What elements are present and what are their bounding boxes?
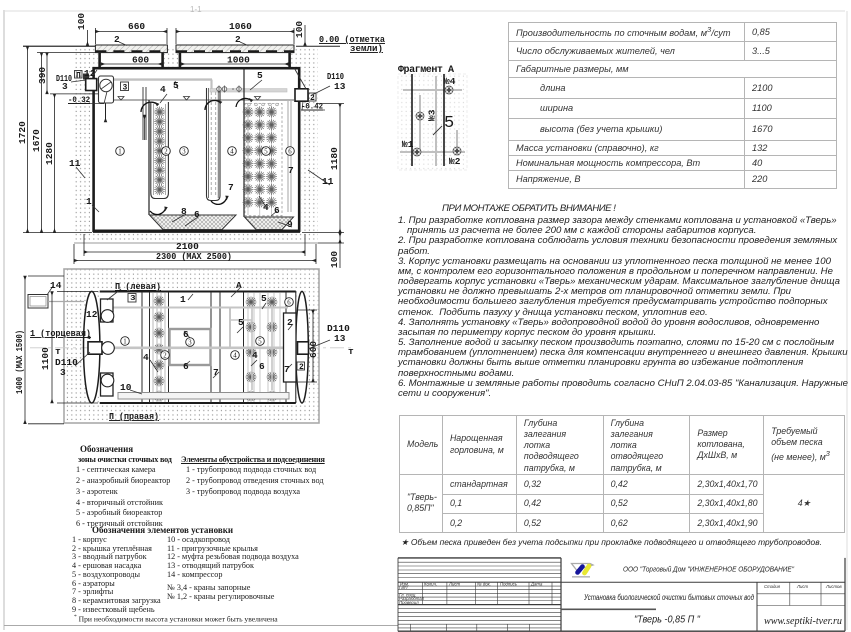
svg-text:5: 5 — [261, 293, 267, 304]
svg-text:1720: 1720 — [17, 121, 28, 144]
svg-text:5: 5 — [258, 338, 262, 345]
svg-text:8: 8 — [181, 206, 187, 217]
svg-text:1: 1 — [118, 148, 121, 155]
svg-text:Колич.: Колич. — [424, 582, 437, 587]
svg-text:5: 5 — [264, 148, 268, 155]
svg-text:Стадия: Стадия — [764, 584, 781, 589]
svg-text:5: 5 — [444, 114, 454, 133]
svg-text:2: 2 — [163, 352, 167, 359]
svg-text:П: П — [76, 72, 81, 81]
svg-text:Проверил: Проверил — [399, 600, 419, 605]
svg-text:ООО "Торговый Дом "ИНЖЕНЕРНОЕ: ООО "Торговый Дом "ИНЖЕНЕРНОЕ ОБОРУДОВАН… — [623, 565, 794, 574]
svg-text:№ док.: № док. — [477, 582, 491, 587]
svg-text:6: 6 — [287, 299, 291, 306]
svg-text:1-1: 1-1 — [190, 5, 202, 14]
svg-text:D110: D110 — [55, 357, 78, 368]
svg-text:ГИП: ГИП — [399, 585, 408, 590]
svg-text:2300 (MAX 2500): 2300 (MAX 2500) — [156, 251, 232, 262]
svg-text:12: 12 — [86, 309, 98, 320]
svg-text:земли): земли) — [350, 43, 383, 54]
svg-text:13: 13 — [334, 81, 346, 92]
svg-text:1: 1 — [123, 338, 126, 345]
svg-text:1: 1 — [86, 196, 92, 207]
svg-text:3: 3 — [123, 84, 128, 93]
svg-text:1: 1 — [180, 294, 186, 305]
svg-text:4: 4 — [143, 352, 149, 363]
svg-text:12: 12 — [84, 68, 96, 79]
svg-text:11: 11 — [69, 158, 81, 169]
svg-text:Листов: Листов — [825, 584, 842, 589]
svg-text:Установка биологической очистк: Установка биологической очистки бытовых … — [583, 593, 754, 602]
svg-text:Лист: Лист — [796, 584, 808, 589]
svg-text:2: 2 — [310, 94, 315, 103]
svg-text:3: 3 — [62, 81, 68, 92]
svg-text:2: 2 — [114, 34, 120, 45]
svg-text:7: 7 — [213, 367, 219, 378]
svg-text:3: 3 — [188, 339, 192, 346]
svg-text:№1: №1 — [402, 139, 414, 150]
svg-text:1 (торцевая): 1 (торцевая) — [30, 328, 91, 339]
svg-text:3: 3 — [60, 367, 66, 378]
svg-text:2: 2 — [299, 363, 304, 372]
svg-text:5: 5 — [173, 80, 179, 91]
svg-text:-0.32: -0.32 — [68, 95, 90, 105]
svg-text:Фрагмент А: Фрагмент А — [398, 65, 454, 76]
svg-text:11: 11 — [322, 176, 334, 187]
svg-text:Подпись: Подпись — [500, 582, 518, 587]
svg-text:А: А — [236, 280, 242, 291]
svg-text:5: 5 — [238, 317, 244, 328]
svg-text:7: 7 — [288, 165, 294, 176]
svg-text:1000: 1000 — [227, 55, 250, 66]
svg-text:6: 6 — [288, 148, 292, 155]
svg-text:т: т — [55, 346, 61, 357]
svg-text:100: 100 — [76, 13, 87, 30]
svg-text:4: 4 — [233, 352, 237, 359]
svg-text:6: 6 — [274, 205, 280, 216]
svg-text:600: 600 — [132, 55, 149, 66]
svg-text:П (левая): П (левая) — [115, 281, 161, 292]
svg-text:2: 2 — [164, 148, 168, 155]
svg-text:7: 7 — [284, 364, 290, 375]
svg-text:Лист: Лист — [448, 582, 460, 587]
svg-text:3: 3 — [182, 148, 186, 155]
svg-text:-0.42: -0.42 — [301, 102, 323, 112]
svg-text:4: 4 — [252, 350, 258, 361]
svg-text:№3: №3 — [427, 109, 438, 121]
svg-text:6: 6 — [194, 209, 200, 220]
svg-text:1670: 1670 — [31, 129, 42, 152]
svg-text:600: 600 — [308, 341, 319, 358]
svg-text:2: 2 — [235, 34, 241, 45]
svg-text:1280: 1280 — [44, 142, 55, 165]
svg-text:Дата: Дата — [530, 582, 543, 587]
svg-text:6: 6 — [259, 361, 265, 372]
svg-text:2: 2 — [287, 317, 293, 328]
svg-text:7: 7 — [228, 182, 234, 193]
svg-text:4: 4 — [263, 202, 269, 213]
svg-text:4: 4 — [160, 84, 166, 95]
svg-text:100: 100 — [329, 251, 340, 268]
svg-text:П (правая): П (правая) — [109, 411, 159, 422]
svg-text:14: 14 — [50, 280, 62, 291]
svg-text:"Тверь -0,85 П ": "Тверь -0,85 П " — [634, 615, 700, 626]
svg-text:390: 390 — [37, 67, 48, 84]
svg-text:660: 660 — [128, 21, 145, 32]
svg-text:1060: 1060 — [229, 21, 252, 32]
svg-text:1100: 1100 — [40, 347, 51, 370]
svg-text:10: 10 — [120, 382, 132, 393]
svg-text:№4: №4 — [444, 76, 456, 87]
svg-text:13: 13 — [334, 333, 346, 344]
svg-text:100: 100 — [294, 21, 305, 38]
svg-text:9: 9 — [287, 219, 293, 230]
svg-text:www.septiki-tver.ru: www.septiki-tver.ru — [764, 616, 842, 627]
svg-text:5: 5 — [257, 70, 263, 81]
svg-text:т: т — [348, 346, 354, 357]
svg-text:6: 6 — [183, 361, 189, 372]
svg-text:1180: 1180 — [329, 147, 340, 170]
svg-text:№2: №2 — [449, 156, 461, 167]
svg-text:1400 (MAX 1500): 1400 (MAX 1500) — [14, 330, 25, 394]
svg-text:4: 4 — [230, 148, 234, 155]
